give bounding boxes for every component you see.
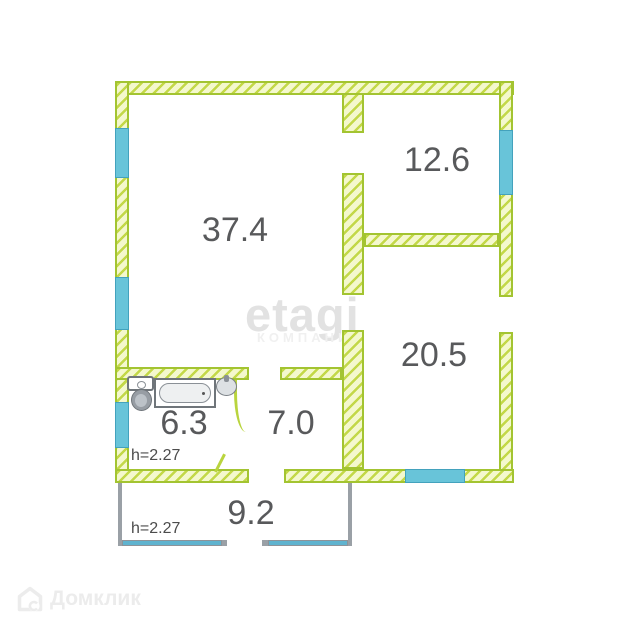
wall-hall-top [280,367,342,380]
wall-partition-vertical-middle [342,173,364,295]
domclick-watermark: Домклик [16,585,141,613]
window-left-bathroom [115,402,129,448]
porch-wall-left [118,483,122,546]
porch-wall-right [348,483,352,546]
room-area-label-porch: 9.2 [196,496,306,530]
sink-icon [216,377,237,396]
room-area-label-bedroom1: 12.6 [382,143,492,177]
domclick-watermark-text: Домклик [50,587,141,611]
wall-right-lower [499,332,513,483]
house-icon [16,585,44,613]
window-bottom-bedroom2 [405,469,465,483]
room-area-label-hall: 7.0 [236,406,346,440]
wall-bottom-right [284,469,514,483]
window-left-1 [115,128,129,178]
height-note-porch: h=2.27 [131,521,180,537]
wall-top [115,81,514,95]
wall-partition-vertical-bottom [342,330,364,469]
window-right-bedroom1 [499,130,513,195]
porch-window-right [268,540,348,546]
porch-window-left [122,540,222,546]
wall-bedroom1-bottom [364,233,499,247]
window-left-2 [115,277,129,330]
room-area-label-bathroom: 6.3 [129,406,239,440]
room-area-label-living: 37.4 [180,213,290,247]
wall-partition-vertical-top [342,93,364,133]
wall-bottom-left [115,469,249,483]
height-note-bathroom: h=2.27 [131,448,180,464]
floorplan-canvas: etagi КОМПАНИЯ 37.4 12.6 20.5 6.3 7. [0,0,630,630]
room-area-label-bedroom2: 20.5 [379,338,489,372]
